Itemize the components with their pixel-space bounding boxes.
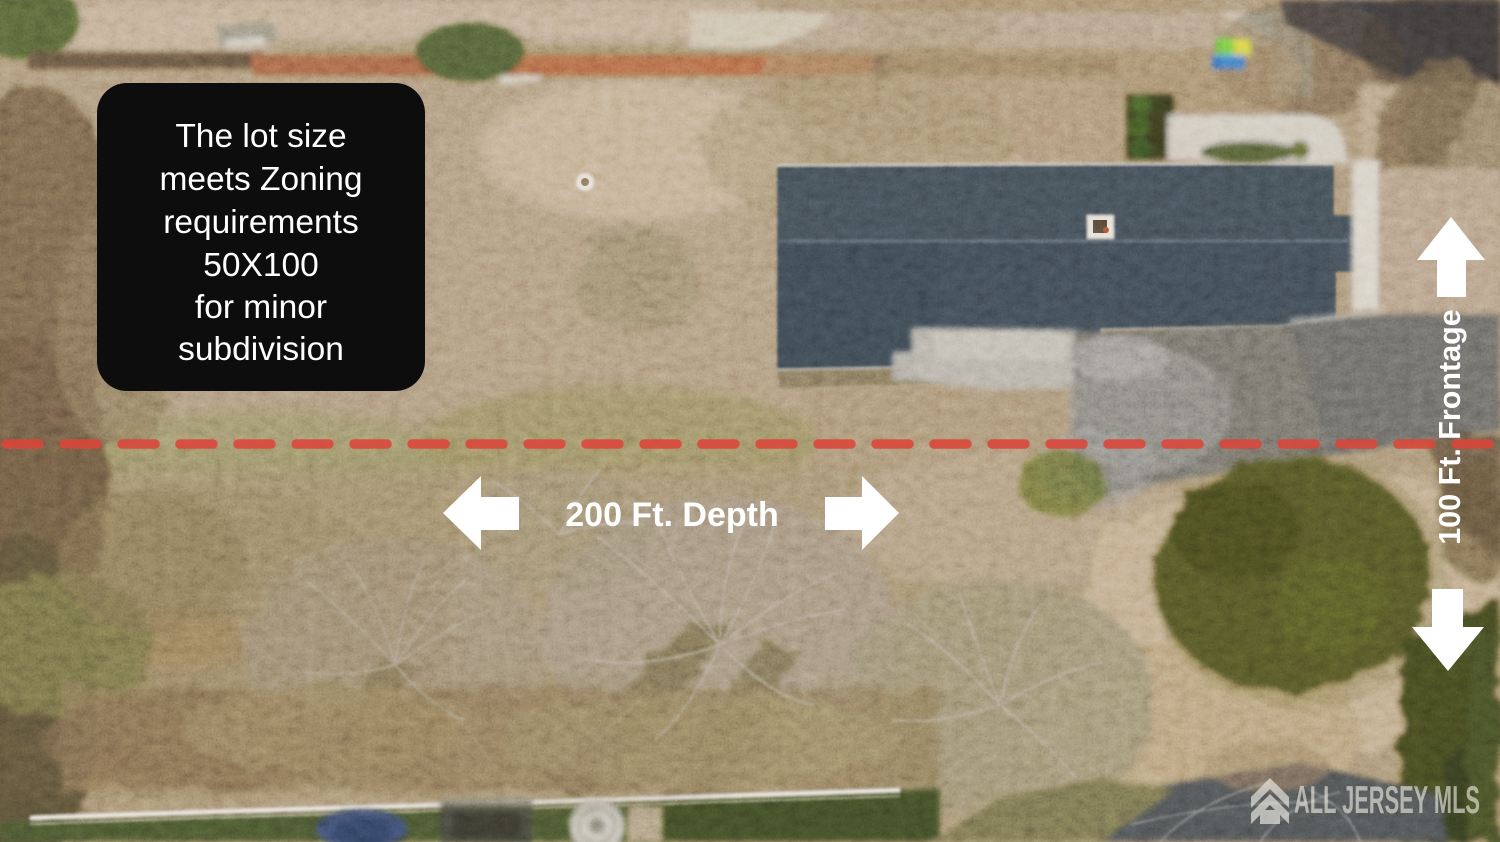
svg-text:subdivision: subdivision bbox=[178, 331, 344, 368]
svg-text:meets Zoning: meets Zoning bbox=[160, 161, 363, 198]
svg-text:50X100: 50X100 bbox=[203, 247, 319, 284]
svg-text:100 Ft. Frontage: 100 Ft. Frontage bbox=[1433, 309, 1467, 545]
svg-text:200 Ft. Depth: 200 Ft. Depth bbox=[565, 496, 778, 534]
svg-text:for minor: for minor bbox=[195, 289, 327, 326]
svg-text:ALL JERSEY MLS: ALL JERSEY MLS bbox=[1294, 779, 1480, 822]
svg-text:requirements: requirements bbox=[163, 204, 359, 241]
svg-text:The lot size: The lot size bbox=[175, 118, 346, 155]
